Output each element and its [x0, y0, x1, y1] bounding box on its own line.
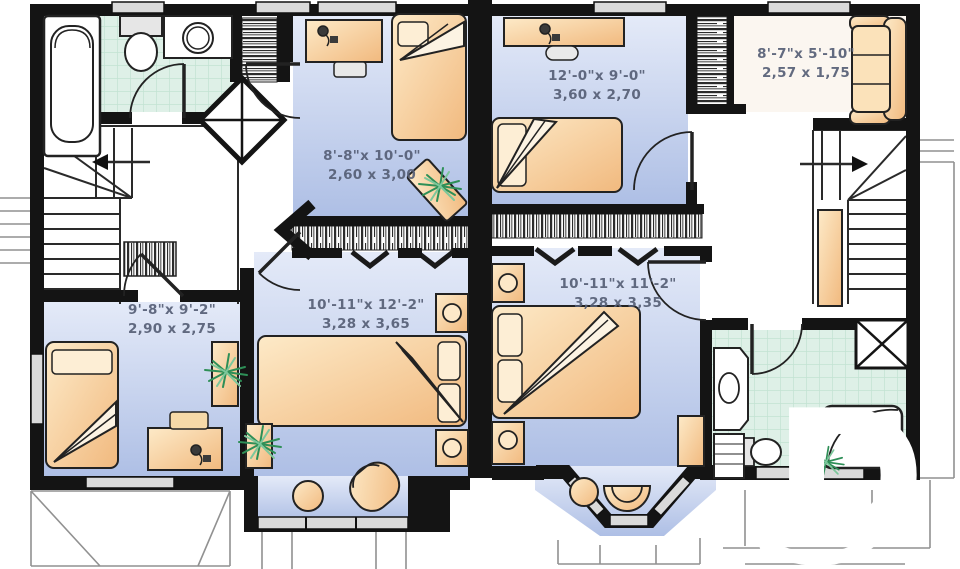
watermark-letter: D [772, 370, 926, 569]
nightstand-mr-b [492, 422, 524, 464]
closet-band-left [292, 226, 470, 250]
bed-ul [392, 14, 466, 140]
desk-ll [148, 428, 222, 470]
floor-plan-drawing: D [0, 0, 960, 569]
bed-ll [46, 342, 118, 468]
window-bedroom-ur [594, 2, 666, 13]
closet-upper-right [697, 16, 727, 112]
window-bay-right-bottom [610, 515, 648, 526]
desk-chair-ul [334, 62, 366, 77]
bed-ur [492, 118, 622, 192]
window-bath-left [112, 2, 164, 13]
window-bedroom-ll [86, 477, 174, 488]
round-table-left [293, 481, 323, 511]
stair-rail-hatch-left [124, 242, 176, 276]
window-bedroom-ul-b [318, 2, 396, 13]
window-bedroom-ul-a [256, 2, 310, 13]
window-sitting [768, 2, 850, 13]
round-table-right [570, 478, 598, 506]
bed-master-left [258, 336, 466, 426]
x-box-right [856, 320, 908, 368]
window-bay-left [258, 517, 408, 529]
closet-band-right [492, 214, 702, 238]
watermark-logo: D [766, 370, 926, 569]
stool-ur [546, 46, 578, 60]
nightstand-mr-a [492, 264, 524, 302]
window-left-wall [31, 354, 43, 424]
stairs-arrow-right [852, 156, 868, 172]
sofa [850, 16, 906, 124]
nightstand-ml-b [436, 430, 468, 466]
vanity-sink-left [164, 16, 232, 58]
desk-ur [504, 18, 624, 46]
dresser-mr [678, 416, 704, 466]
stair-rail-right [818, 210, 842, 306]
nightstand-ml-a [436, 294, 468, 332]
floor-plan: D 8'-8"x 10'-0" 2,60 x 3,00 12'-0"x 9'-0… [0, 0, 960, 569]
sink-right [719, 373, 739, 403]
bed-master-right [492, 306, 640, 418]
sitting-area-furniture [850, 16, 906, 124]
staircase-right [800, 130, 906, 306]
cabinet-right [714, 434, 744, 478]
desk-chair-ll [170, 412, 208, 429]
desk-ul [306, 20, 382, 62]
